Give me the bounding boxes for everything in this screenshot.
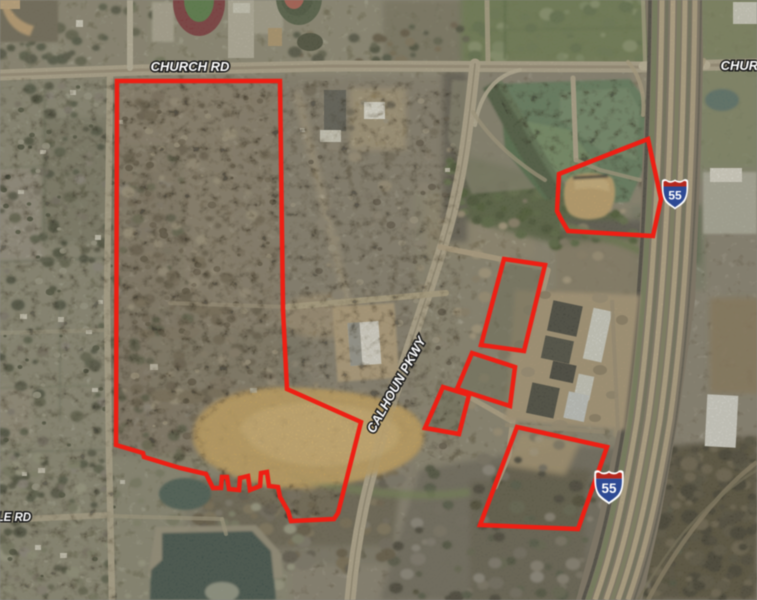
svg-text:CHURCH RD: CHURCH RD [721,58,757,73]
svg-text:CHURCH RD: CHURCH RD [151,59,230,74]
svg-text:DALE RD: DALE RD [0,512,31,524]
svg-text:55: 55 [668,189,682,203]
svg-text:55: 55 [602,481,617,496]
